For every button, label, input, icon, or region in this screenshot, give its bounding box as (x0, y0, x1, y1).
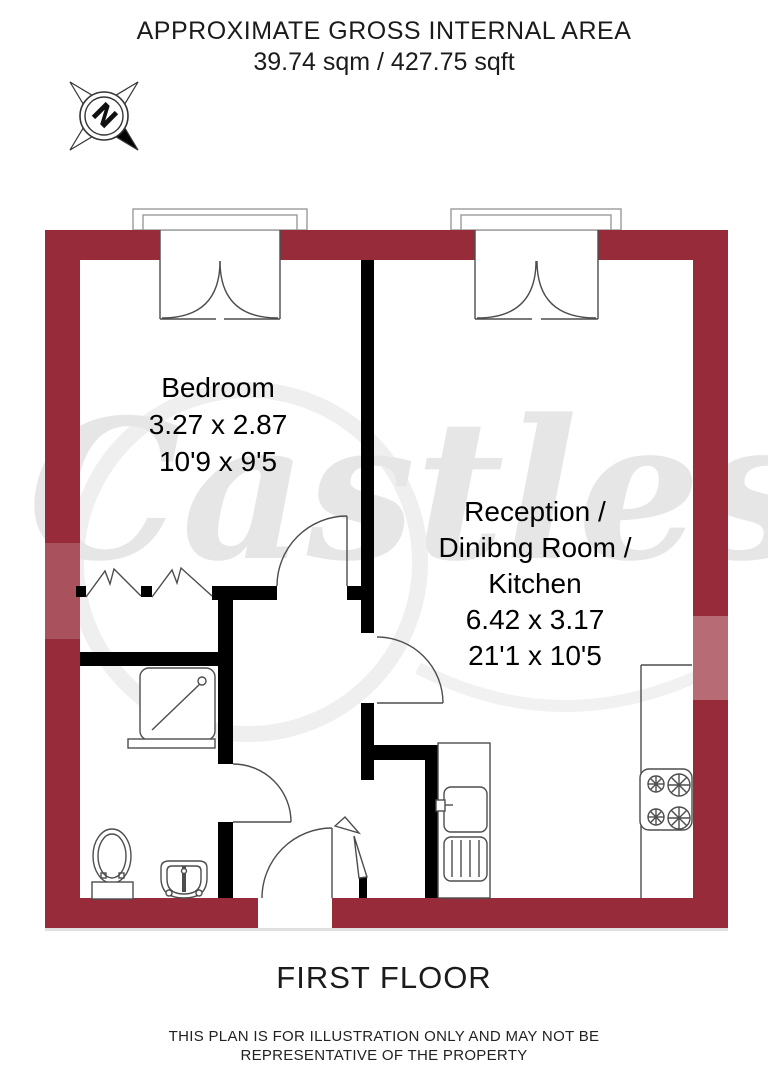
reception-name-line3: Kitchen (374, 566, 696, 602)
bedroom-door (277, 516, 347, 586)
burner-top-left (648, 776, 664, 792)
hob (640, 769, 692, 830)
shower (128, 668, 215, 748)
balcony-outline-reception (451, 209, 621, 230)
front-door (262, 817, 367, 898)
reception-imperial: 21'1 x 10'5 (374, 638, 696, 674)
french-door-bedroom (160, 230, 280, 319)
reception-name-line2: Dinibng Room / (374, 530, 696, 566)
disclaimer-line-1: THIS PLAN IS FOR ILLUSTRATION ONLY AND M… (0, 1027, 768, 1046)
bedroom-metric: 3.27 x 2.87 (68, 406, 368, 443)
floorplan-page: APPROXIMATE GROSS INTERNAL AREA 39.74 sq… (0, 0, 768, 1085)
page-title: APPROXIMATE GROSS INTERNAL AREA (0, 16, 768, 47)
burner-top-right (668, 774, 690, 796)
compass-rose: N (50, 62, 160, 172)
balcony-outline-bedroom (133, 209, 307, 230)
burner-bottom-left (648, 809, 664, 825)
reception-label: Reception / Dinibng Room / Kitchen 6.42 … (374, 494, 696, 674)
burner-bottom-right (668, 807, 690, 829)
bedroom-name: Bedroom (68, 369, 368, 406)
bedroom-imperial: 10'9 x 9'5 (68, 443, 368, 480)
disclaimer-line-2: REPRESENTATIVE OF THE PROPERTY (0, 1046, 768, 1065)
disclaimer: THIS PLAN IS FOR ILLUSTRATION ONLY AND M… (0, 1027, 768, 1065)
basin (161, 861, 207, 898)
french-door-reception (475, 230, 598, 319)
toilet (92, 829, 133, 899)
reception-name-line1: Reception / (374, 494, 696, 530)
bedroom-label: Bedroom 3.27 x 2.87 10'9 x 9'5 (68, 369, 368, 480)
floor-title: FIRST FLOOR (0, 960, 768, 996)
kitchen-sink-counter (436, 743, 490, 898)
bathroom-door (233, 764, 291, 822)
reception-metric: 6.42 x 3.17 (374, 602, 696, 638)
